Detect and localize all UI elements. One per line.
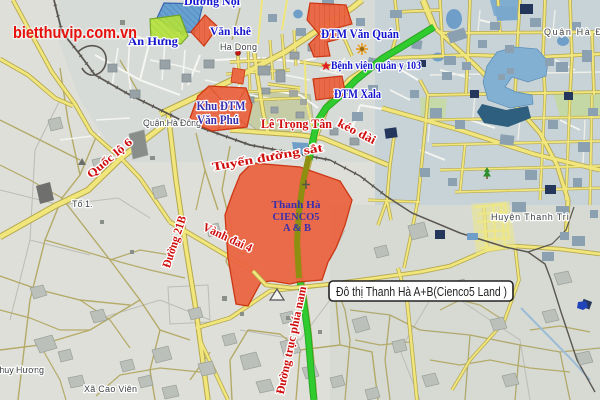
svg-text:ĐTM Văn Quán: ĐTM Văn Quán: [321, 27, 399, 41]
svg-text:Bệnh viện quân y 103: Bệnh viện quân y 103: [331, 60, 421, 72]
svg-text:A & B: A & B: [283, 222, 312, 234]
svg-text:Tố 1.: Tố 1.: [72, 199, 93, 209]
svg-text:Huyện Thanh Trì: Huyện Thanh Trì: [491, 212, 569, 222]
svg-text:Ha Dong: Ha Dong: [220, 42, 257, 52]
svg-text:Đô thị Thanh Hà A+B(Cienco5 La: Đô thị Thanh Hà A+B(Cienco5 Land ): [336, 285, 507, 299]
svg-text:bietthuvip.com.vn: bietthuvip.com.vn: [13, 23, 137, 42]
svg-text:ĐTM Xala: ĐTM Xala: [334, 87, 382, 101]
svg-text:Xã Cao Viên: Xã Cao Viên: [84, 384, 137, 394]
svg-text:Quận Hà Đ: Quận Hà Đ: [544, 27, 600, 37]
svg-text:Thuy Hương: Thuy Hương: [0, 365, 44, 375]
svg-text:Thanh Hà: Thanh Hà: [272, 199, 322, 211]
svg-text:Lê Trọng Tân: Lê Trọng Tân: [261, 116, 333, 131]
svg-text:Văn khê: Văn khê: [210, 24, 252, 38]
svg-text:Quận.Hà Đông: Quận.Hà Đông: [143, 118, 201, 128]
svg-text:Văn Phú: Văn Phú: [197, 113, 239, 127]
svg-text:Dương Nội: Dương Nội: [184, 0, 241, 8]
svg-text:Khu ĐTM: Khu ĐTM: [197, 99, 246, 113]
